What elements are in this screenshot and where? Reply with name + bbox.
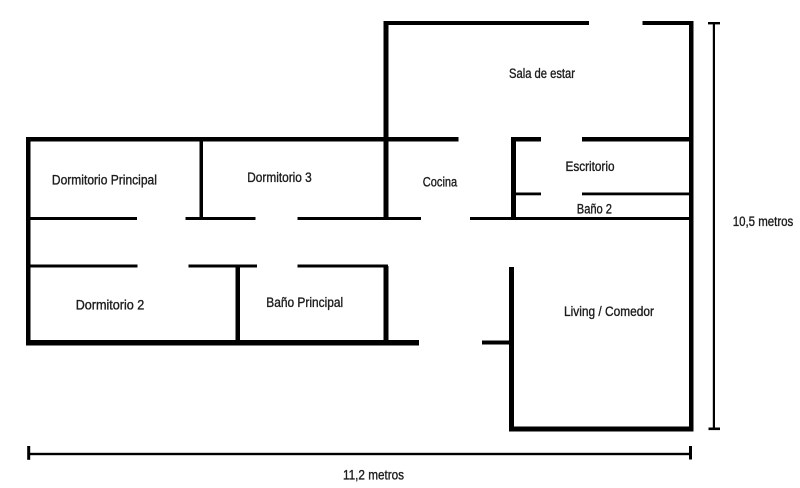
svg-text:Dormitorio 3: Dormitorio 3 <box>247 170 312 185</box>
svg-text:Cocina: Cocina <box>423 175 458 190</box>
svg-text:Baño 2: Baño 2 <box>577 202 612 217</box>
svg-text:Dormitorio Principal: Dormitorio Principal <box>52 172 157 187</box>
svg-text:Living / Comedor: Living / Comedor <box>564 304 654 319</box>
svg-text:Escritorio: Escritorio <box>566 159 615 174</box>
svg-text:Sala de estar: Sala de estar <box>509 66 575 81</box>
svg-text:10,5 metros: 10,5 metros <box>733 214 794 229</box>
svg-text:Dormitorio 2: Dormitorio 2 <box>76 298 145 313</box>
svg-text:Baño Principal: Baño Principal <box>266 295 343 310</box>
svg-text:11,2 metros: 11,2 metros <box>343 468 404 483</box>
